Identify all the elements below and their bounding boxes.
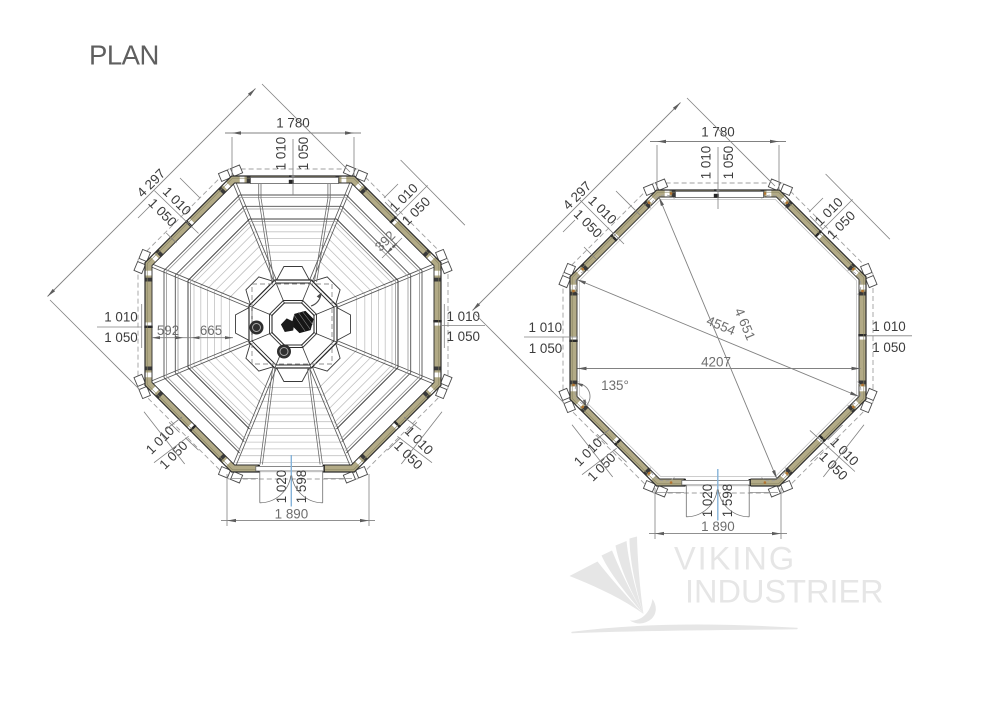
svg-text:1 010: 1 010 (274, 137, 289, 171)
svg-text:1 050: 1 050 (104, 330, 138, 345)
svg-text:665: 665 (200, 323, 222, 338)
svg-text:1 890: 1 890 (701, 519, 735, 534)
svg-text:1 010: 1 010 (529, 320, 563, 335)
svg-text:PLAN: PLAN (89, 40, 159, 71)
svg-text:1 050: 1 050 (446, 329, 480, 344)
svg-text:1 780: 1 780 (701, 125, 735, 140)
svg-text:1 890: 1 890 (275, 506, 309, 521)
svg-text:1 050: 1 050 (872, 340, 906, 355)
svg-text:1 050: 1 050 (721, 146, 736, 180)
svg-text:1 050: 1 050 (296, 137, 311, 171)
svg-text:INDUSTRIER: INDUSTRIER (685, 574, 884, 610)
svg-text:1 010: 1 010 (446, 309, 480, 324)
svg-text:1 010: 1 010 (699, 146, 714, 180)
svg-text:1 010: 1 010 (104, 309, 138, 324)
svg-text:VIKING: VIKING (674, 541, 796, 577)
svg-text:135°: 135° (601, 378, 629, 393)
svg-text:1 780: 1 780 (276, 116, 310, 131)
svg-text:592: 592 (157, 323, 179, 338)
svg-text:4207: 4207 (701, 355, 731, 370)
svg-text:1 010: 1 010 (872, 319, 906, 334)
svg-text:1 050: 1 050 (529, 341, 563, 356)
